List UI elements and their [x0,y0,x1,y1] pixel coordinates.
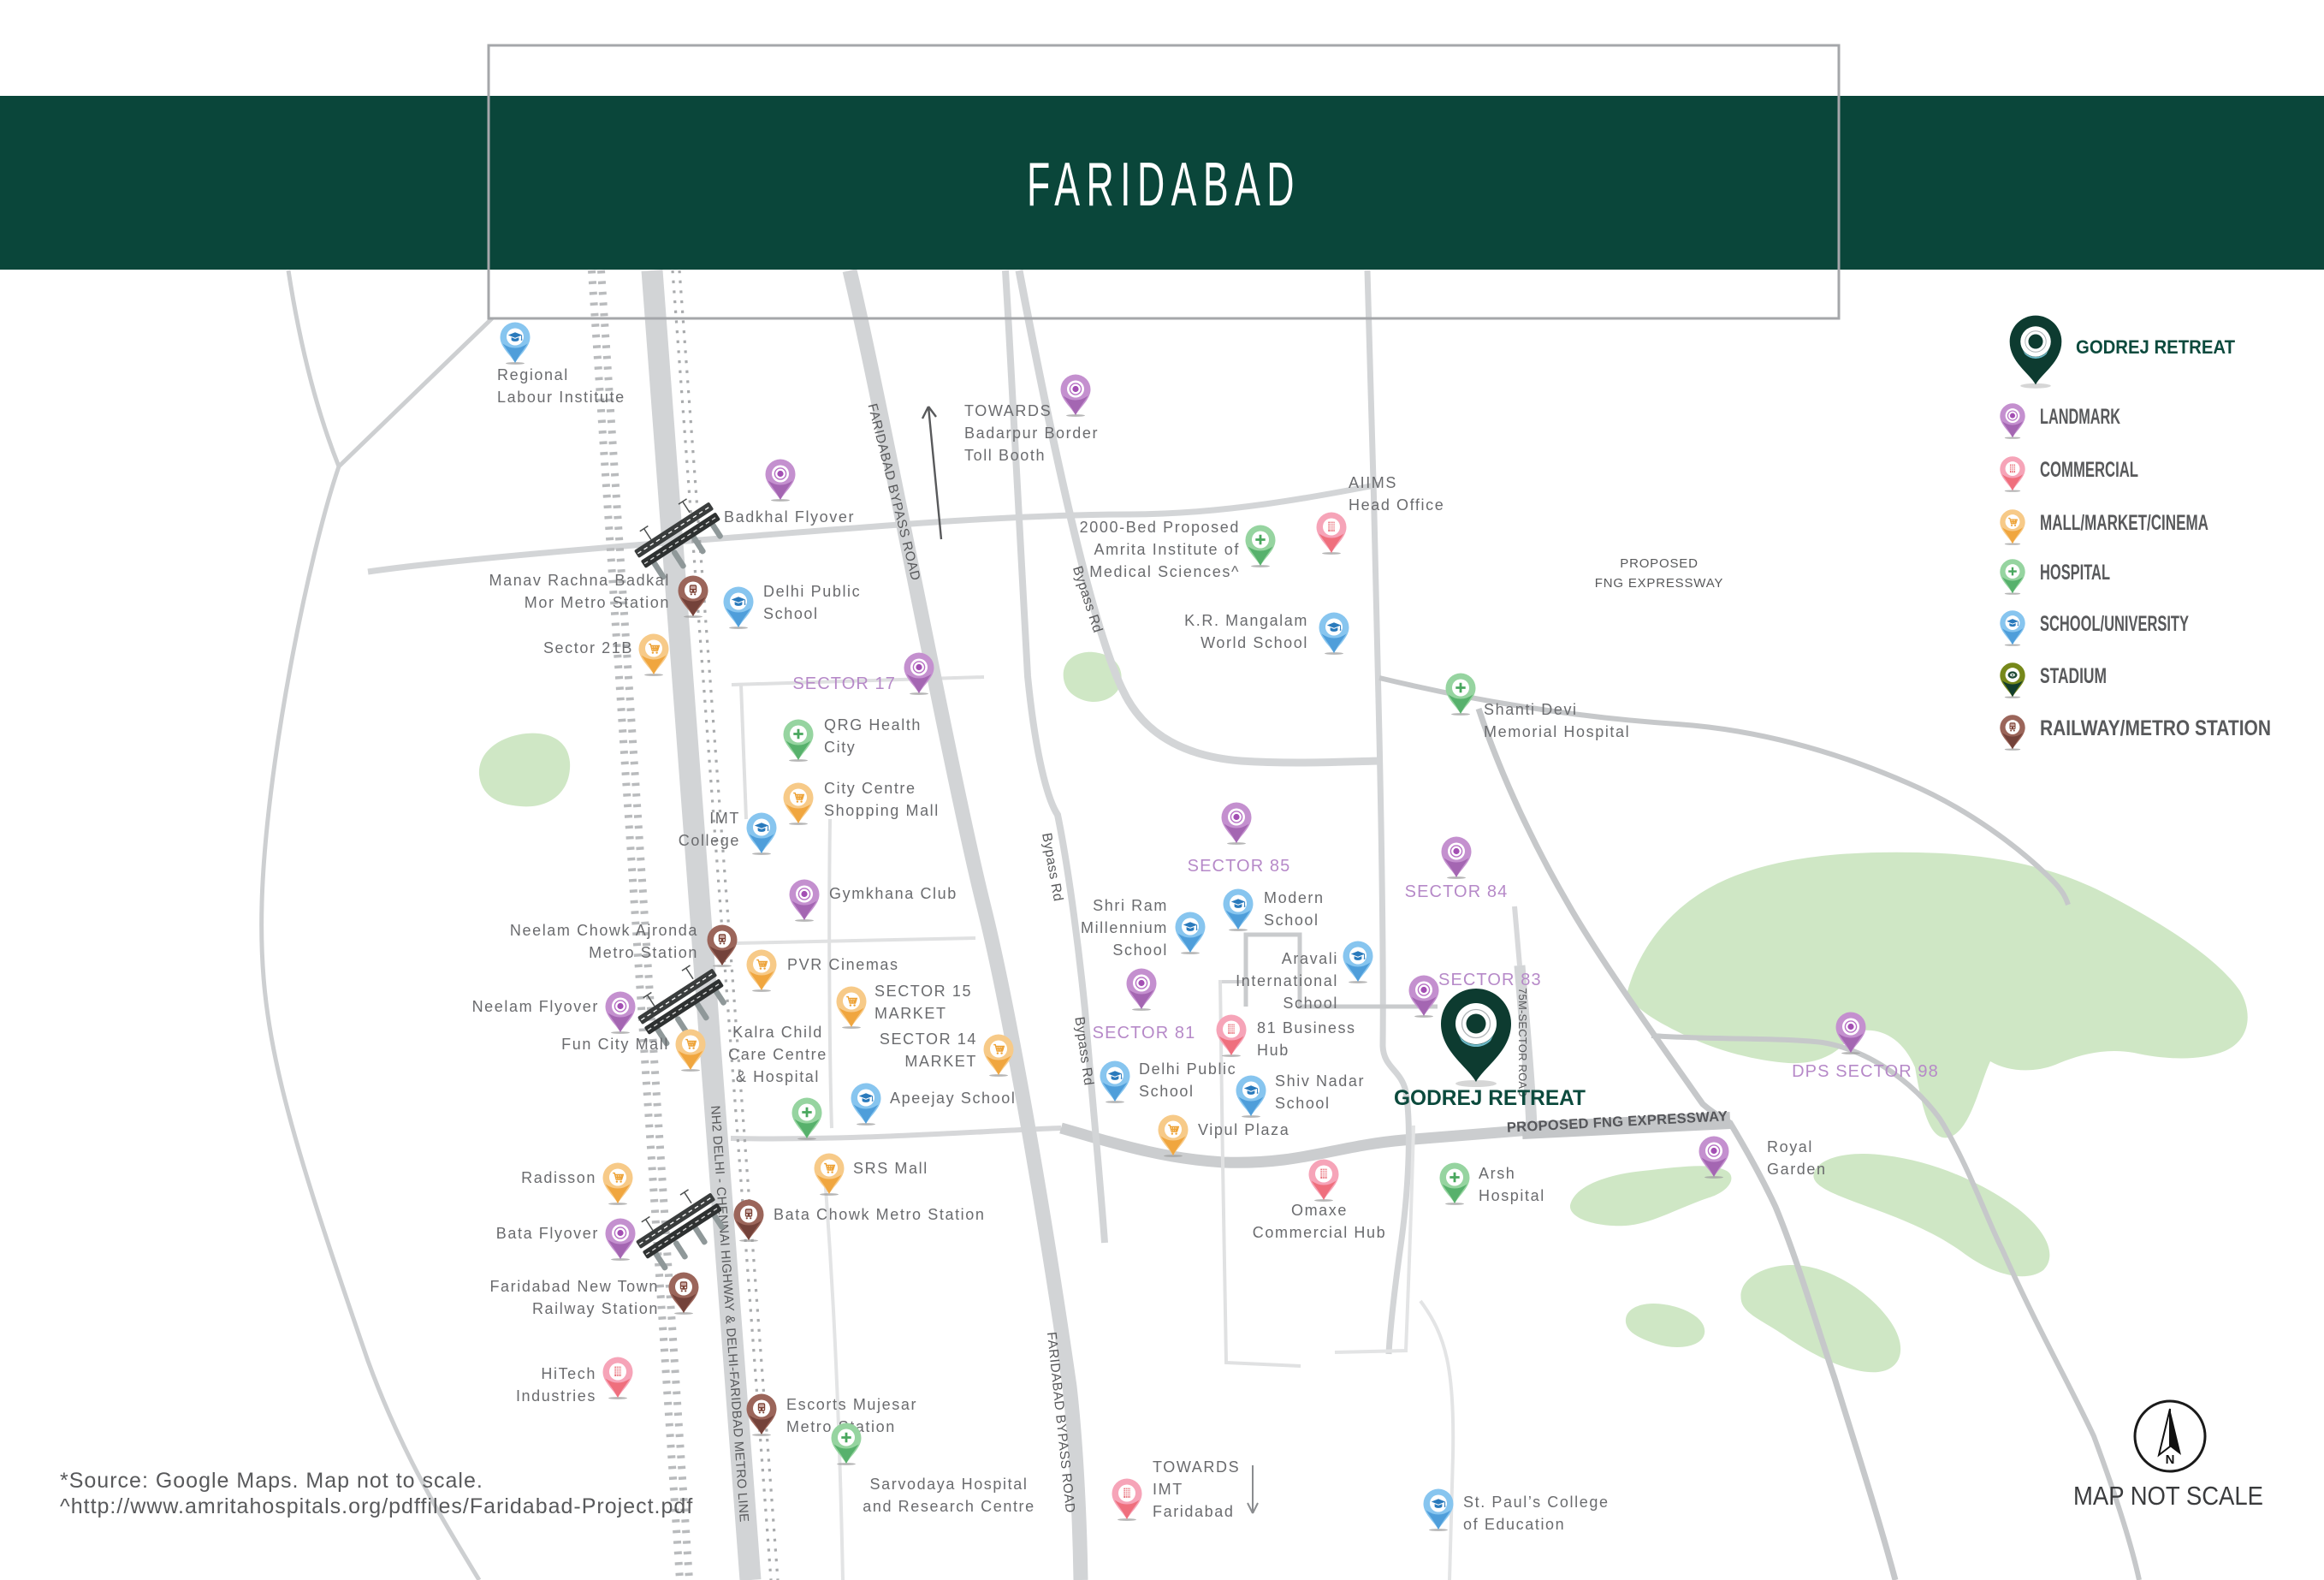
svg-text:QRG Health: QRG Health [824,716,922,734]
svg-text:Neelam Flyover: Neelam Flyover [472,998,599,1015]
svg-text:Commercial Hub: Commercial Hub [1253,1224,1386,1241]
svg-text:World School: World School [1201,634,1308,651]
svg-text:Faridabad New Town: Faridabad New Town [489,1278,659,1295]
svg-text:^http://www.amritahospitals.or: ^http://www.amritahospitals.org/pdffiles… [60,1494,693,1518]
svg-text:Apeejay School: Apeejay School [890,1090,1017,1107]
svg-text:Care Centre: Care Centre [728,1046,827,1063]
svg-text:GODREJ RETREAT: GODREJ RETREAT [1394,1086,1586,1110]
svg-text:IMT: IMT [1153,1481,1183,1498]
svg-text:Medical Sciences^: Medical Sciences^ [1089,563,1240,580]
svg-text:SECTOR 85: SECTOR 85 [1188,857,1291,876]
svg-text:MALL/MARKET/CINEMA: MALL/MARKET/CINEMA [2040,511,2208,535]
svg-text:Industries: Industries [516,1387,596,1405]
svg-text:Mor Metro Station: Mor Metro Station [525,594,670,611]
svg-text:81 Business: 81 Business [1257,1019,1356,1037]
svg-text:Faridabad: Faridabad [1153,1503,1234,1520]
svg-text:Royal: Royal [1767,1138,1813,1155]
svg-text:PVR Cinemas: PVR Cinemas [787,956,899,973]
svg-text:SECTOR 83: SECTOR 83 [1438,971,1542,989]
svg-text:Hub: Hub [1257,1042,1289,1059]
svg-text:Fun City Mall: Fun City Mall [561,1036,669,1053]
svg-text:School: School [1275,1095,1331,1112]
svg-text:*Source: Google Maps. Map not: *Source: Google Maps. Map not to scale. [60,1469,483,1493]
svg-text:Memorial Hospital: Memorial Hospital [1484,723,1630,740]
svg-text:Escorts Mujesar: Escorts Mujesar [786,1396,917,1413]
svg-text:SECTOR 17: SECTOR 17 [792,674,896,693]
svg-text:Metro Station: Metro Station [589,944,698,961]
svg-text:IMT: IMT [709,810,740,827]
svg-text:HOSPITAL: HOSPITAL [2040,561,2110,585]
svg-text:Aravali: Aravali [1282,950,1338,967]
svg-text:Neelam Chowk Ajronda: Neelam Chowk Ajronda [510,922,698,939]
svg-text:Shiv Nadar: Shiv Nadar [1275,1072,1365,1090]
svg-text:College: College [679,832,740,849]
svg-text:Badarpur Border: Badarpur Border [964,425,1099,442]
svg-text:School: School [763,605,819,622]
svg-text:City Centre: City Centre [824,780,916,797]
svg-text:Toll Booth: Toll Booth [964,447,1046,464]
svg-text:SRS Mall: SRS Mall [853,1160,928,1177]
svg-text:FARIDABAD: FARIDABAD [1027,150,1301,219]
svg-text:HiTech: HiTech [541,1365,596,1382]
svg-text:Radisson: Radisson [521,1169,596,1186]
svg-text:GODREJ RETREAT: GODREJ RETREAT [2076,336,2236,358]
svg-text:SECTOR 84: SECTOR 84 [1405,882,1509,901]
svg-text:SECTOR 14: SECTOR 14 [880,1031,977,1048]
svg-text:Amrita Institute of: Amrita Institute of [1094,541,1240,558]
svg-text:of Education: of Education [1463,1516,1565,1533]
svg-text:Vipul Plaza: Vipul Plaza [1198,1121,1289,1138]
svg-text:Shanti Devi: Shanti Devi [1484,701,1578,718]
svg-text:Bata Flyover: Bata Flyover [496,1225,599,1242]
svg-text:75M-SECTOR ROAD: 75M-SECTOR ROAD [1516,988,1529,1097]
svg-text:TOWARDS: TOWARDS [964,402,1052,419]
svg-text:COMMERCIAL: COMMERCIAL [2040,458,2138,482]
svg-text:DPS SECTOR 98: DPS SECTOR 98 [1792,1062,1939,1081]
svg-text:Sector 21B: Sector 21B [543,639,633,656]
svg-text:MARKET: MARKET [904,1053,977,1070]
svg-text:Modern: Modern [1264,889,1325,906]
svg-text:Bata Chowk Metro Station: Bata Chowk Metro Station [774,1206,986,1223]
svg-text:Manav Rachna Badkal: Manav Rachna Badkal [489,572,670,589]
svg-text:School: School [1264,912,1319,929]
svg-text:Railway Station: Railway Station [532,1300,659,1317]
svg-text:FNG EXPRESSWAY: FNG EXPRESSWAY [1595,576,1723,591]
svg-text:City: City [824,739,856,756]
svg-text:Badkhal Flyover: Badkhal Flyover [724,508,855,526]
svg-text:Hospital: Hospital [1479,1187,1545,1204]
svg-text:SECTOR 15: SECTOR 15 [874,983,972,1000]
svg-text:LANDMARK: LANDMARK [2040,405,2120,429]
svg-text:Delhi Public: Delhi Public [1139,1060,1236,1078]
svg-text:AIIMS: AIIMS [1349,474,1397,491]
svg-text:School: School [1112,941,1168,959]
svg-text:MARKET: MARKET [874,1005,947,1022]
svg-text:Arsh: Arsh [1479,1165,1515,1182]
svg-text:Head Office: Head Office [1349,496,1444,514]
svg-text:SECTOR 81: SECTOR 81 [1093,1024,1196,1042]
svg-text:Shri Ram: Shri Ram [1093,897,1168,914]
svg-text:RAILWAY/METRO STATION: RAILWAY/METRO STATION [2040,716,2271,740]
svg-text:PROPOSED: PROPOSED [1620,556,1698,571]
svg-text:School: School [1139,1083,1195,1100]
svg-text:Delhi Public: Delhi Public [763,583,861,600]
svg-text:St. Paul’s College: St. Paul’s College [1463,1494,1610,1511]
svg-text:TOWARDS: TOWARDS [1153,1458,1240,1476]
svg-text:& Hospital: & Hospital [736,1068,820,1085]
svg-text:School: School [1283,995,1338,1012]
svg-text:Regional: Regional [497,366,569,383]
svg-text:SCHOOL/UNIVERSITY: SCHOOL/UNIVERSITY [2040,612,2189,636]
svg-text:Labour Institute: Labour Institute [497,389,625,406]
svg-text:Omaxe: Omaxe [1291,1202,1348,1219]
svg-text:2000-Bed Proposed: 2000-Bed Proposed [1080,519,1240,536]
svg-text:International: International [1236,972,1338,989]
svg-text:STADIUM: STADIUM [2040,664,2107,688]
svg-text:Gymkhana Club: Gymkhana Club [829,885,957,902]
svg-text:and Research Centre: and Research Centre [863,1498,1035,1515]
svg-text:Millennium: Millennium [1081,919,1168,936]
svg-text:Kalra Child: Kalra Child [732,1024,823,1041]
svg-text:N: N [2166,1452,2175,1467]
svg-text:Garden: Garden [1767,1161,1827,1178]
svg-text:Sarvodaya Hospital: Sarvodaya Hospital [870,1476,1029,1493]
svg-text:Shopping Mall: Shopping Mall [824,802,940,819]
svg-text:K.R. Mangalam: K.R. Mangalam [1184,612,1308,629]
svg-text:MAP NOT SCALE: MAP NOT SCALE [2073,1481,2263,1511]
